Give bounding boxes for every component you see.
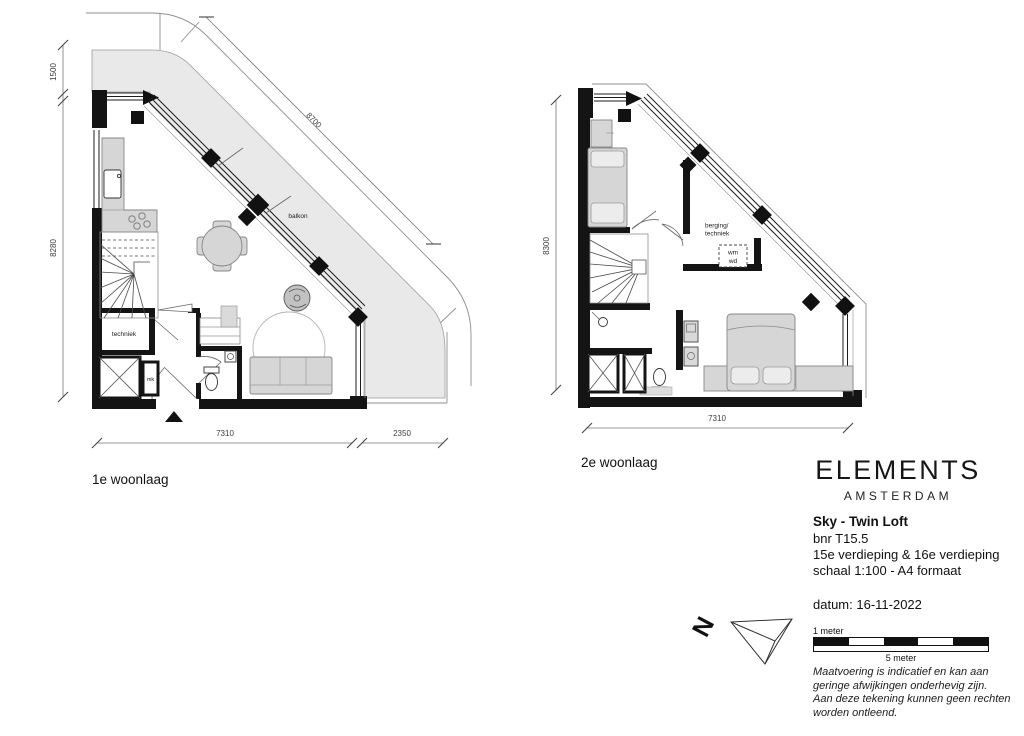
brand-city: AMSTERDAM <box>810 489 986 503</box>
floorplan-sheet: balkon <box>0 0 1024 736</box>
elevator-shafts-2 <box>588 354 645 392</box>
plant <box>284 285 310 311</box>
berging-techniek: berging/ techniek wm wd <box>662 223 747 268</box>
wm-label: wm <box>727 250 738 257</box>
scale-note: schaal 1:100 - A4 formaat <box>813 563 961 578</box>
floors: 15e verdieping & 16e verdieping <box>813 547 999 562</box>
toilet <box>204 367 219 391</box>
dim-7310: 7310 <box>216 429 234 438</box>
dim-1500: 1500 <box>49 63 58 81</box>
facade-mullions-2 <box>680 143 855 316</box>
north-letter: N <box>692 612 720 641</box>
balkon-label: balkon <box>288 213 308 220</box>
dim-8700: 8700 <box>304 111 323 130</box>
scale-bar-total <box>813 646 989 652</box>
brand-block: ELEMENTS AMSTERDAM <box>810 455 986 503</box>
staircase <box>100 232 178 340</box>
wd-label: wd <box>728 258 738 265</box>
disclaimer-line: Maatvoering is indicatief en kan aan <box>813 666 1024 680</box>
washbasins <box>684 321 698 366</box>
staircase-2 <box>590 234 648 303</box>
single-bed <box>588 148 627 227</box>
washbasin <box>225 351 236 362</box>
floor-plan-1e-woonlaag: balkon <box>0 0 500 500</box>
berging-label-1: berging/ <box>705 223 729 230</box>
elevator-shaft <box>99 357 140 398</box>
scale-bar-segments <box>813 637 989 646</box>
plan2-title: 2e woonlaag <box>581 455 658 470</box>
unit-name: Sky - Twin Loft <box>813 514 908 529</box>
disclaimer-line: worden ontleend. <box>813 707 1024 721</box>
master-bedroom <box>704 314 853 391</box>
dim-7310-2: 7310 <box>708 414 726 423</box>
disclaimer-line: geringe afwijkingen onderhevig zijn. <box>813 680 1024 694</box>
dim-8300: 8300 <box>542 237 551 255</box>
scale-bar-bottom-label: 5 meter <box>813 653 989 663</box>
sofa <box>250 357 332 394</box>
floor-plan-2e-woonlaag: berging/ techniek wm wd <box>520 60 970 480</box>
entry-arrow <box>165 411 183 422</box>
bedroom-small <box>588 120 659 229</box>
bnr: bnr T15.5 <box>813 531 868 546</box>
disclaimer: Maatvoering is indicatief en kan aan ger… <box>813 666 1024 720</box>
washer-dryer: wm wd <box>719 245 747 267</box>
left-window <box>94 130 99 208</box>
mk-label: mk <box>147 377 155 383</box>
scale-bar: 1 meter 5 meter <box>813 626 989 663</box>
kitchen <box>102 138 157 232</box>
techniek-label: techniek <box>112 331 137 338</box>
dining-table <box>197 221 247 271</box>
dim-2350: 2350 <box>393 429 411 438</box>
mk-closet: mk <box>143 362 158 395</box>
date: datum: 16-11-2022 <box>813 597 922 612</box>
scale-bar-top-label: 1 meter <box>813 626 989 636</box>
berging-label-2: techniek <box>705 231 730 238</box>
shower <box>592 312 608 327</box>
disclaimer-line: Aan deze tekening kunnen geen rechten <box>813 693 1024 707</box>
north-arrow: N <box>692 598 802 678</box>
dim-8280: 8280 <box>49 239 58 257</box>
plan1-title: 1e woonlaag <box>92 472 169 487</box>
brand-name: ELEMENTS <box>810 455 986 486</box>
